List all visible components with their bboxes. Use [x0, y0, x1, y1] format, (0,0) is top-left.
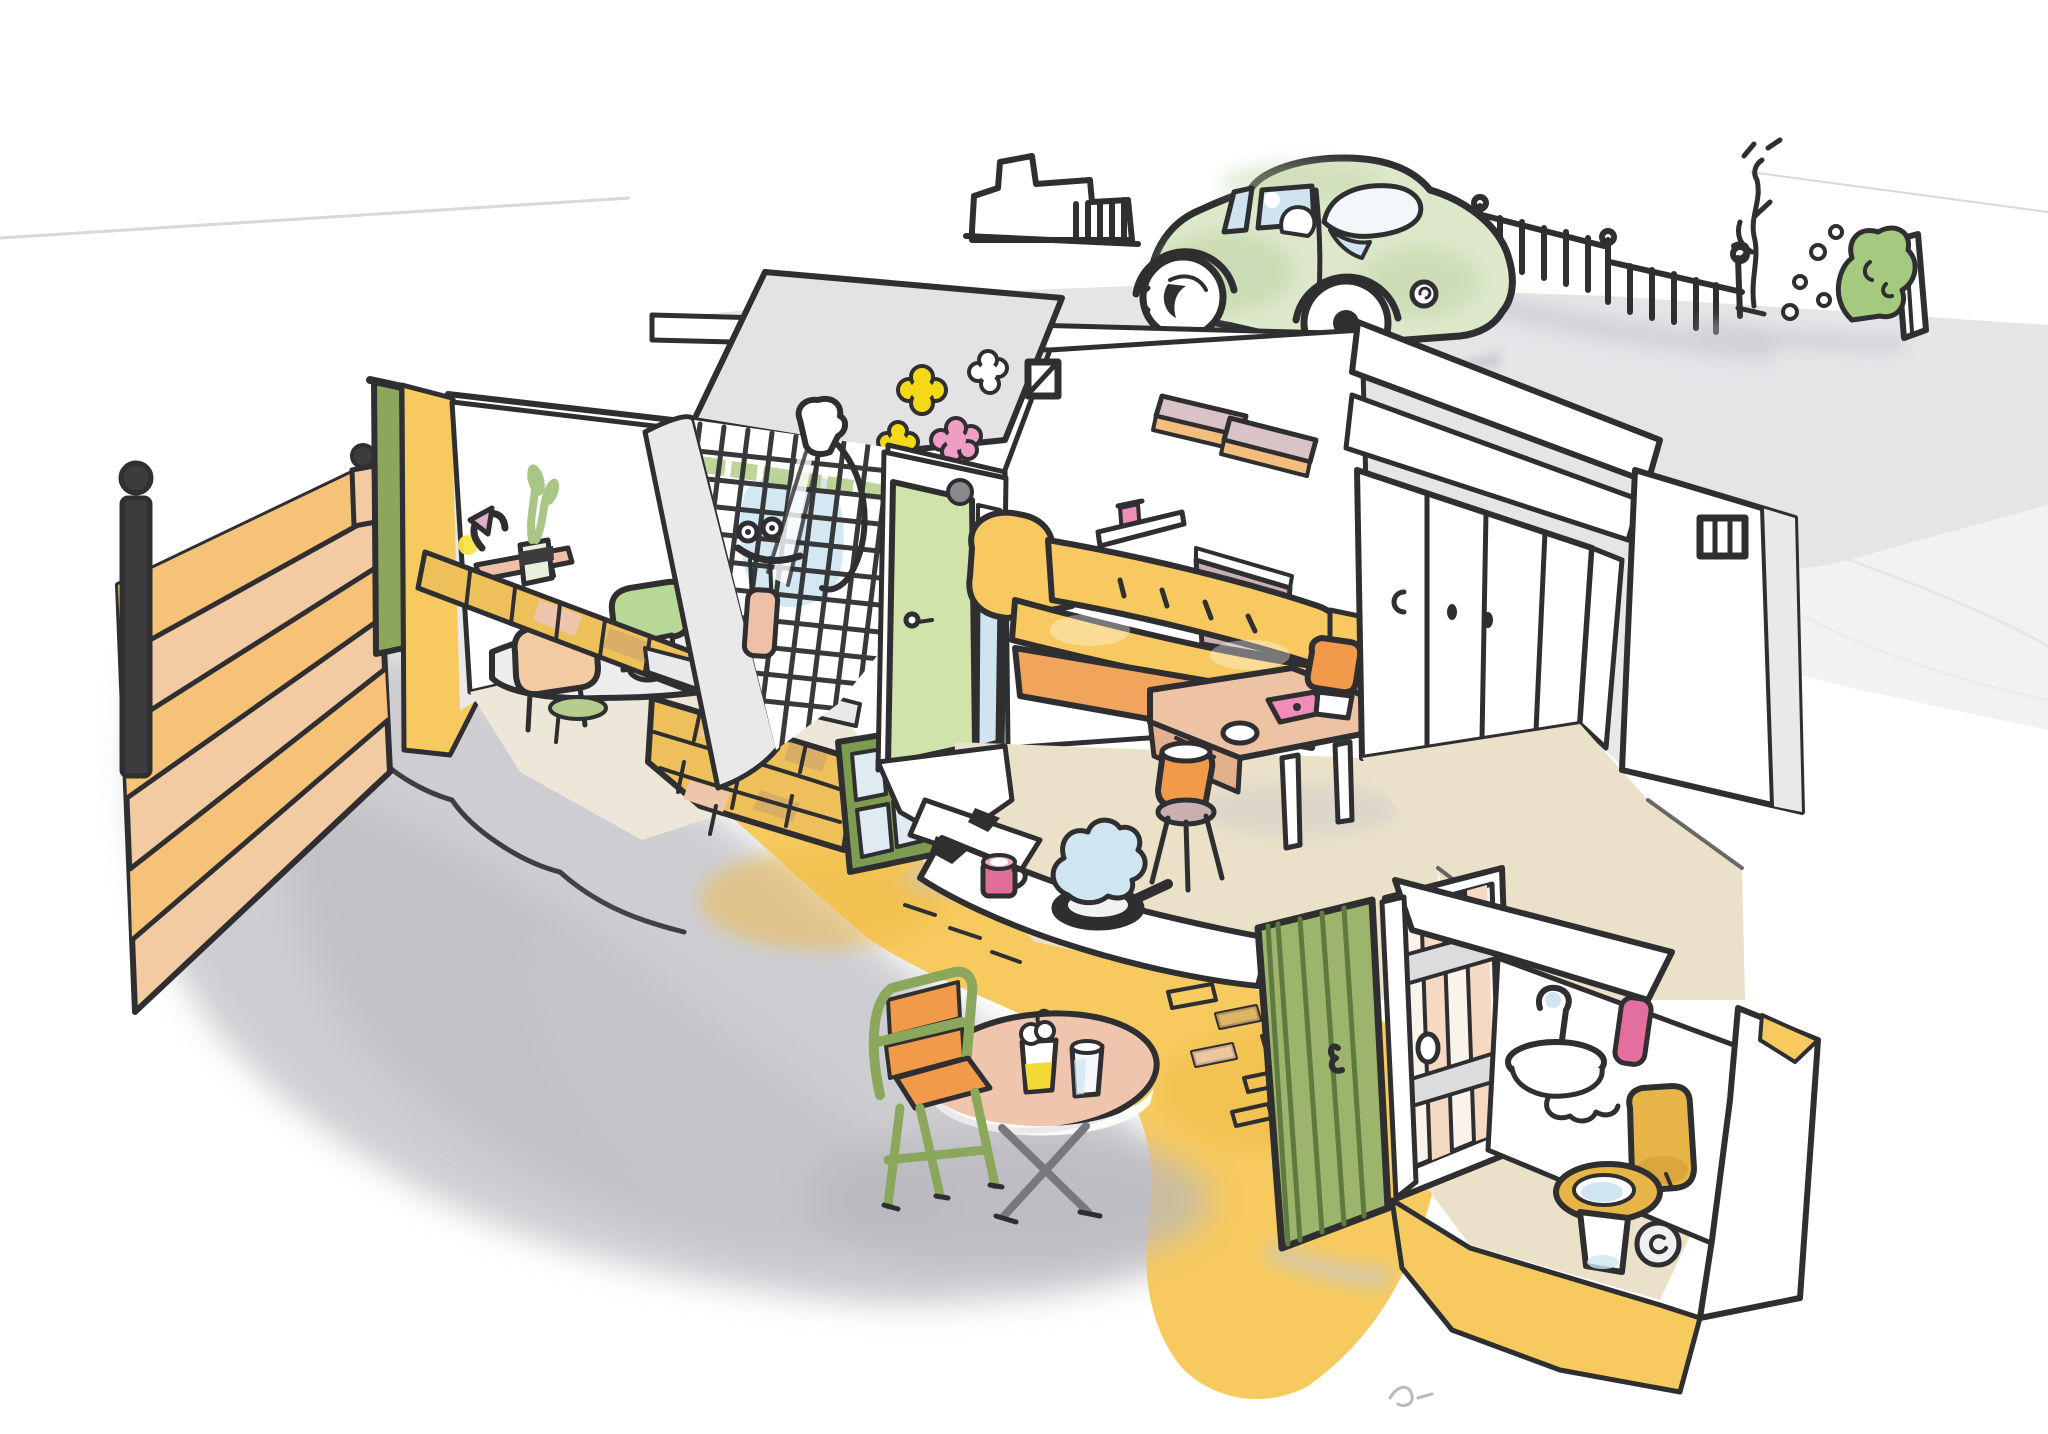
wc-pink-towel [1614, 996, 1653, 1066]
rear-lamp [1412, 282, 1436, 306]
front-wheel [1143, 257, 1223, 337]
table-bowl [1223, 723, 1257, 743]
artist-signature [1390, 1387, 1432, 1405]
door-latch-icon [1418, 1034, 1438, 1062]
house-and-garden [118, 272, 1818, 1406]
dining-chair-rear [1308, 638, 1361, 718]
milk-glass [1072, 1041, 1102, 1096]
toilet-paper-roll [1637, 1223, 1679, 1265]
fence-post-left [122, 498, 150, 776]
illustration-canvas [0, 0, 2048, 1434]
bush-foliage [1838, 228, 1915, 320]
door-hinge-top [948, 480, 972, 504]
car-headrest [1281, 207, 1314, 236]
green-rug [550, 697, 606, 719]
vent-window-icon [1700, 518, 1745, 556]
boundary-wall [1622, 470, 1802, 812]
outside-toilet [1385, 868, 1818, 1392]
cupboard-knob-1 [1447, 604, 1457, 620]
garden-wall-sketch [966, 156, 1138, 244]
house-cutaway-drawing [0, 0, 2048, 1434]
cupboard-knob-2 [1483, 612, 1493, 628]
door-handle-icon [906, 614, 918, 626]
patio-shadow [810, 1130, 1210, 1270]
air-vent-icon [1028, 362, 1058, 396]
street-tree [1738, 140, 1780, 314]
post-finial-left [121, 463, 151, 493]
shower-towel [744, 589, 779, 657]
post-finial-right [352, 445, 374, 467]
